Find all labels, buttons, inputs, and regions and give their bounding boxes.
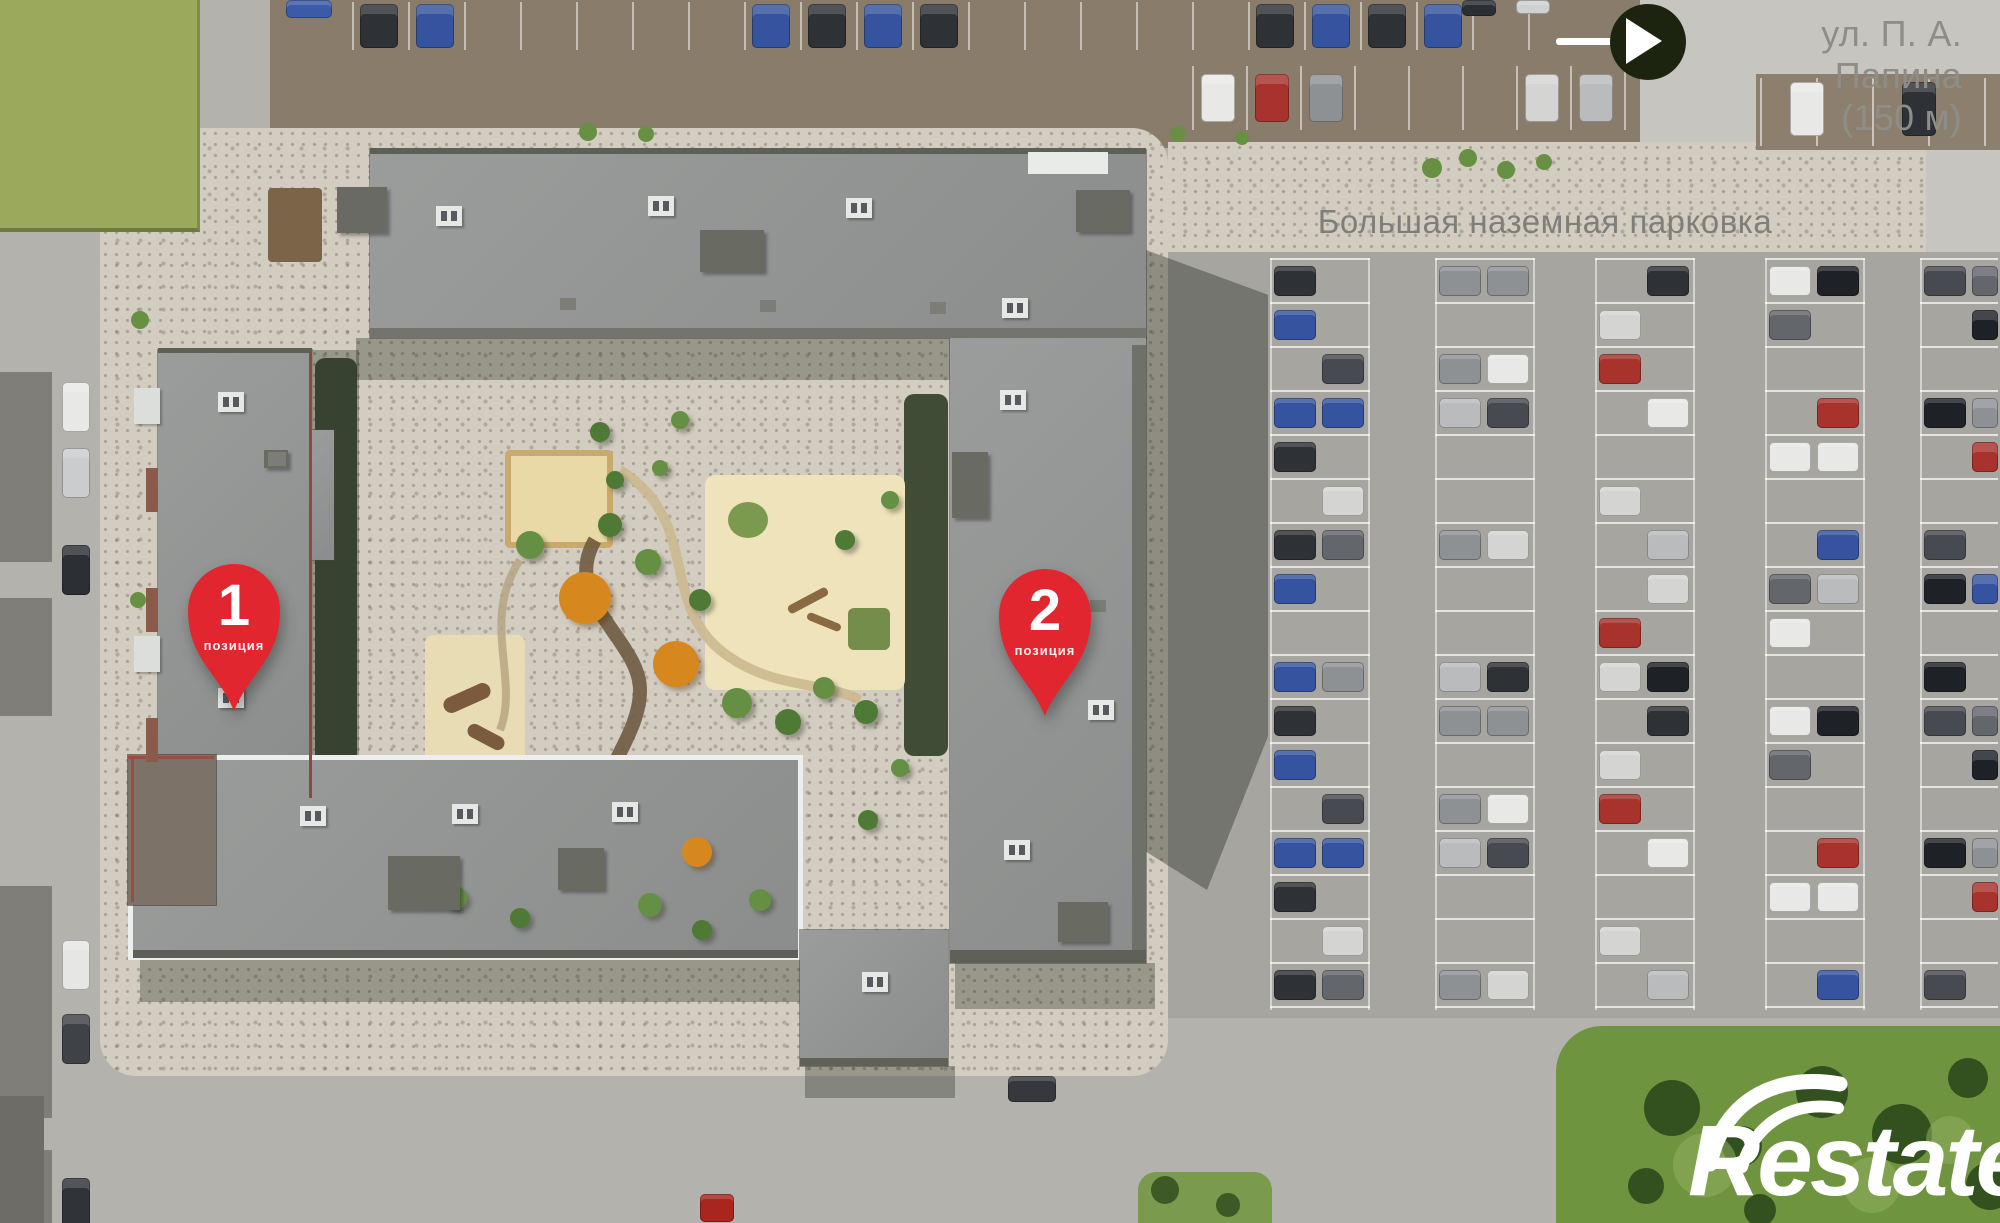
stall-line: [1270, 830, 1370, 832]
car: [1817, 398, 1859, 428]
car: [1599, 618, 1641, 648]
ac-fan: [1019, 845, 1025, 855]
car: [1599, 310, 1641, 340]
stall-line: [1136, 2, 1138, 50]
stall-line: [1765, 566, 1865, 568]
stall-line: [1360, 2, 1362, 50]
car: [1817, 266, 1859, 296]
building-bottom-tower-red-line: [128, 756, 214, 759]
stall-line: [1435, 302, 1535, 304]
autumn-tree: [559, 572, 611, 624]
car: [1817, 970, 1859, 1000]
car: [1487, 706, 1529, 736]
ac-fan: [627, 807, 633, 817]
stall-line: [1435, 478, 1535, 480]
stall-line: [1270, 566, 1370, 568]
stall-line: [1765, 522, 1865, 524]
ac-fan: [663, 201, 669, 211]
ac-fan: [1103, 705, 1109, 715]
stall-line: [1270, 654, 1370, 656]
car: [1322, 662, 1364, 692]
ac-fan: [1009, 845, 1015, 855]
car: [1647, 574, 1689, 604]
car: [808, 4, 846, 48]
stall-line: [1920, 566, 1998, 568]
car: [62, 940, 90, 990]
car: [1322, 926, 1364, 956]
building-bottom-tower: [128, 755, 216, 905]
site-plan-map: ул. П. А. Папина (150 м) Большая наземна…: [0, 0, 2000, 1223]
stall-line: [1435, 742, 1535, 744]
stall-line: [1246, 66, 1248, 130]
stall-line: [1435, 434, 1535, 436]
stall-line: [800, 2, 802, 50]
stall-line: [1920, 874, 1998, 876]
stall-line: [1570, 66, 1572, 130]
street-name-line1: ул. П. А. Папина: [1690, 13, 1962, 97]
stall-line: [1920, 258, 1922, 1010]
stall-line: [1435, 830, 1535, 832]
car: [1924, 706, 1966, 736]
stall-line: [1765, 478, 1865, 480]
tree: [516, 531, 544, 559]
stall-line: [1408, 66, 1410, 130]
stall-line: [1595, 258, 1695, 260]
street-name-label: ул. П. А. Папина (150 м): [1690, 13, 1962, 139]
car: [1647, 266, 1689, 296]
rooftop-ac-unit: [300, 806, 326, 826]
car: [1322, 970, 1364, 1000]
stall-line: [1300, 66, 1302, 130]
car: [1274, 838, 1316, 868]
stall-line: [1984, 78, 1986, 146]
car: [1769, 618, 1811, 648]
car: [920, 4, 958, 48]
car: [1817, 530, 1859, 560]
stall-line: [1595, 434, 1695, 436]
car: [1599, 354, 1641, 384]
car: [1817, 706, 1859, 736]
car: [1274, 662, 1316, 692]
stall-line: [1765, 434, 1865, 436]
stall-line: [1435, 786, 1535, 788]
tree: [749, 889, 771, 911]
tree: [858, 810, 878, 830]
stall-line: [1920, 1006, 1998, 1008]
stall-line: [1270, 478, 1370, 480]
car: [1487, 838, 1529, 868]
stall-line: [1192, 2, 1194, 50]
stall-line: [1270, 786, 1370, 788]
street-name-line2: (150 м): [1690, 97, 1962, 139]
stall-line: [1595, 830, 1695, 832]
stall-line: [1270, 698, 1370, 700]
stall-line: [1765, 962, 1865, 964]
stall-line: [1595, 390, 1695, 392]
stall-line: [1765, 346, 1865, 348]
stall-line: [1435, 346, 1535, 348]
stall-line: [1765, 830, 1865, 832]
roadside-stall-pad: [0, 886, 52, 1118]
tree: [638, 893, 662, 917]
car: [1599, 750, 1641, 780]
car: [1309, 74, 1343, 122]
utility-shed: [337, 187, 387, 233]
rooftop-ac-unit: [452, 804, 478, 824]
car: [1972, 838, 1998, 868]
stall-line: [1304, 2, 1306, 50]
car: [1274, 398, 1316, 428]
car: [1322, 398, 1364, 428]
car: [1525, 74, 1559, 122]
stall-line: [1462, 66, 1464, 130]
pin-number: 2: [990, 577, 1100, 644]
car: [1599, 486, 1641, 516]
stall-line: [1595, 522, 1695, 524]
car: [1274, 574, 1316, 604]
stall-line: [1863, 258, 1865, 1010]
car: [1817, 838, 1859, 868]
rooftop-bulkhead: [1076, 190, 1130, 232]
car: [1972, 442, 1998, 472]
stall-line: [1920, 786, 1998, 788]
stall-line: [1435, 258, 1535, 260]
stall-line: [1595, 698, 1695, 700]
map-pin-position-2[interactable]: 2 позиция: [990, 561, 1100, 719]
stall-line: [1765, 786, 1865, 788]
bush: [579, 123, 597, 141]
car: [1924, 662, 1966, 692]
car: [1769, 310, 1811, 340]
stall-line: [1248, 2, 1250, 50]
rooftop-ac-unit: [436, 206, 462, 226]
tree: [854, 700, 878, 724]
car: [1647, 838, 1689, 868]
ac-fan: [1007, 303, 1013, 313]
ac-fan: [1005, 395, 1011, 405]
bush: [131, 311, 149, 329]
stall-line: [1270, 390, 1370, 392]
stall-line: [1765, 258, 1865, 260]
car: [1817, 442, 1859, 472]
stall-line: [1516, 66, 1518, 130]
building-left-parapet: [158, 348, 312, 353]
stall-line: [1595, 566, 1695, 568]
roof-vent: [560, 298, 576, 310]
stall-line: [520, 2, 522, 50]
stall-line: [1435, 610, 1535, 612]
stall-line: [1595, 918, 1695, 920]
car: [1972, 706, 1998, 736]
tree: [881, 491, 899, 509]
stall-line: [1435, 918, 1535, 920]
stall-line: [1192, 66, 1194, 130]
car: [1924, 970, 1966, 1000]
car: [1972, 310, 1998, 340]
stall-line: [1354, 66, 1356, 130]
stall-line: [1024, 2, 1026, 50]
car: [1516, 0, 1550, 14]
restate-watermark: Restate: [1630, 1078, 2000, 1223]
building-right-south-edge: [950, 950, 1146, 963]
car: [1817, 882, 1859, 912]
car: [1439, 354, 1481, 384]
tree: [671, 411, 689, 429]
tree: [652, 460, 668, 476]
car: [62, 545, 90, 595]
ac-fan: [617, 807, 623, 817]
stall-line: [1270, 1006, 1370, 1008]
roadside-stall-pad: [0, 598, 52, 716]
building-top-south-edge: [370, 328, 1146, 338]
car: [1487, 794, 1529, 824]
autumn-tree: [653, 641, 699, 687]
stall-line: [1368, 258, 1370, 1010]
building-right-east-edge: [1132, 345, 1146, 955]
stall-line: [1920, 918, 1998, 920]
car: [286, 0, 332, 18]
rooftop-ac-unit: [1000, 390, 1026, 410]
roof-vent: [930, 302, 946, 314]
bush: [130, 592, 146, 608]
stall-line: [1080, 2, 1082, 50]
stall-line: [856, 2, 858, 50]
roadside-stall-pad: [0, 372, 52, 562]
building-left-step-out: [310, 430, 334, 560]
rooftop-bulkhead: [1058, 902, 1108, 942]
car: [700, 1194, 734, 1222]
tree: [689, 589, 711, 611]
stall-line: [1533, 258, 1535, 1010]
car: [62, 382, 90, 432]
stall-line: [1435, 1006, 1535, 1008]
rooftop-bulkhead: [952, 452, 988, 518]
tree: [510, 908, 530, 928]
stall-line: [688, 2, 690, 50]
car: [416, 4, 454, 48]
stall-line: [1920, 830, 1998, 832]
rooftop-ac-unit: [648, 196, 674, 216]
stall-line: [1765, 918, 1865, 920]
stall-line: [1920, 698, 1998, 700]
stall-line: [576, 2, 578, 50]
tree: [635, 549, 661, 575]
car: [1439, 662, 1481, 692]
car: [1924, 838, 1966, 868]
tree: [891, 759, 909, 777]
pin-label: позиция: [179, 638, 289, 653]
bush: [1459, 149, 1477, 167]
car: [1274, 750, 1316, 780]
bush: [1497, 161, 1515, 179]
car: [1579, 74, 1613, 122]
tree: [835, 530, 855, 550]
stall-line: [352, 2, 354, 50]
tree: [606, 471, 624, 489]
car: [1599, 662, 1641, 692]
bush: [1536, 154, 1552, 170]
car: [62, 1014, 90, 1064]
bush: [638, 126, 654, 142]
stall-line: [1435, 258, 1437, 1010]
stall-line: [1920, 346, 1998, 348]
car: [1599, 926, 1641, 956]
car: [1424, 4, 1462, 48]
bush: [1170, 126, 1186, 142]
car: [1368, 4, 1406, 48]
car: [1769, 750, 1811, 780]
rooftop-ac-unit: [218, 392, 244, 412]
ac-fan: [441, 211, 447, 221]
stall-line: [1435, 654, 1535, 656]
car: [62, 448, 90, 498]
building-corner-south-edge: [800, 1058, 948, 1066]
stall-line: [1595, 1006, 1695, 1008]
stall-line: [1595, 258, 1597, 1010]
stall-line: [1416, 2, 1418, 50]
stall-line: [1624, 66, 1626, 130]
car: [1274, 530, 1316, 560]
building-bottom-south-edge: [133, 950, 798, 958]
ac-fan: [851, 203, 857, 213]
parking-caption: Большая наземная парковка: [1195, 203, 1895, 241]
ac-fan: [457, 809, 463, 819]
tree: [775, 709, 801, 735]
stall-line: [1435, 962, 1535, 964]
ac-fan: [653, 201, 659, 211]
car: [1439, 838, 1481, 868]
stall-line: [1595, 654, 1695, 656]
stall-line: [1920, 478, 1998, 480]
car: [752, 4, 790, 48]
pin-label: позиция: [990, 643, 1100, 658]
car: [1274, 970, 1316, 1000]
car: [360, 4, 398, 48]
building-shadow: [955, 963, 1155, 1009]
watermark-text: Restate: [1688, 1104, 2000, 1219]
car: [1462, 0, 1496, 16]
car: [1201, 74, 1235, 122]
car: [1487, 530, 1529, 560]
stall-line: [1270, 346, 1370, 348]
stall-line: [1270, 522, 1370, 524]
car: [1322, 794, 1364, 824]
stall-line: [1595, 874, 1695, 876]
stall-line: [1270, 610, 1370, 612]
car: [1647, 662, 1689, 692]
car: [1255, 74, 1289, 122]
car: [1924, 574, 1966, 604]
stall-line: [408, 2, 410, 50]
ac-fan: [451, 211, 457, 221]
rooftop-bulkhead: [700, 230, 764, 272]
stall-line: [1765, 874, 1865, 876]
balcony-strip: [146, 588, 158, 632]
stall-line: [1765, 610, 1865, 612]
stall-line: [1920, 962, 1998, 964]
car: [1274, 882, 1316, 912]
stall-line: [968, 2, 970, 50]
car: [1487, 970, 1529, 1000]
stall-line: [1595, 478, 1695, 480]
balcony-roof: [134, 388, 160, 424]
car: [1972, 398, 1998, 428]
car: [1769, 882, 1811, 912]
car: [1972, 882, 1998, 912]
car: [1439, 970, 1481, 1000]
car: [1817, 574, 1859, 604]
roof-vent: [760, 300, 776, 312]
ac-fan: [1017, 303, 1023, 313]
bush: [1235, 131, 1249, 145]
stall-line: [1435, 522, 1535, 524]
car: [1439, 706, 1481, 736]
ac-fan: [877, 977, 883, 987]
car: [62, 1178, 90, 1223]
car: [1647, 970, 1689, 1000]
balcony-strip: [146, 468, 158, 512]
ac-fan: [223, 397, 229, 407]
car: [1769, 574, 1811, 604]
stall-line: [1693, 258, 1695, 1010]
ac-fan: [867, 977, 873, 987]
building-shadow: [356, 338, 950, 380]
stall-line: [1595, 610, 1695, 612]
building-bottom-tower-red-line: [131, 758, 134, 902]
stall-line: [1595, 962, 1695, 964]
stall-line: [1270, 258, 1370, 260]
stall-line: [1595, 302, 1695, 304]
stall-line: [1270, 962, 1370, 964]
stall-line: [744, 2, 746, 50]
building-shadow: [313, 350, 359, 802]
ac-fan: [305, 811, 311, 821]
stall-line: [1920, 610, 1998, 612]
stall-line: [632, 2, 634, 50]
car: [1647, 530, 1689, 560]
stall-line: [1595, 786, 1695, 788]
stall-line: [1765, 654, 1865, 656]
stall-line: [1270, 434, 1370, 436]
stall-line: [912, 2, 914, 50]
stall-line: [1270, 918, 1370, 920]
ac-fan: [467, 809, 473, 819]
street-arrow-icon: [1626, 18, 1662, 64]
car: [1487, 662, 1529, 692]
map-pin-position-1[interactable]: 1 позиция: [179, 556, 289, 714]
car: [1647, 706, 1689, 736]
stall-line: [1920, 258, 1998, 260]
rooftop-ac-unit: [1002, 298, 1028, 318]
car: [1439, 530, 1481, 560]
autumn-tree: [682, 837, 712, 867]
stall-line: [464, 2, 466, 50]
stall-line: [1765, 698, 1865, 700]
roof-vent: [268, 452, 286, 466]
car: [1322, 486, 1364, 516]
stall-line: [1765, 742, 1865, 744]
building-left-red-edge: [309, 352, 312, 798]
stall-line: [1435, 874, 1535, 876]
car: [1487, 398, 1529, 428]
ac-fan: [233, 397, 239, 407]
balcony-roof: [134, 636, 160, 672]
rooftop-ac-unit: [1004, 840, 1030, 860]
stall-line: [1765, 258, 1767, 1010]
tree: [598, 513, 622, 537]
stall-line: [1920, 302, 1998, 304]
car: [1312, 4, 1350, 48]
